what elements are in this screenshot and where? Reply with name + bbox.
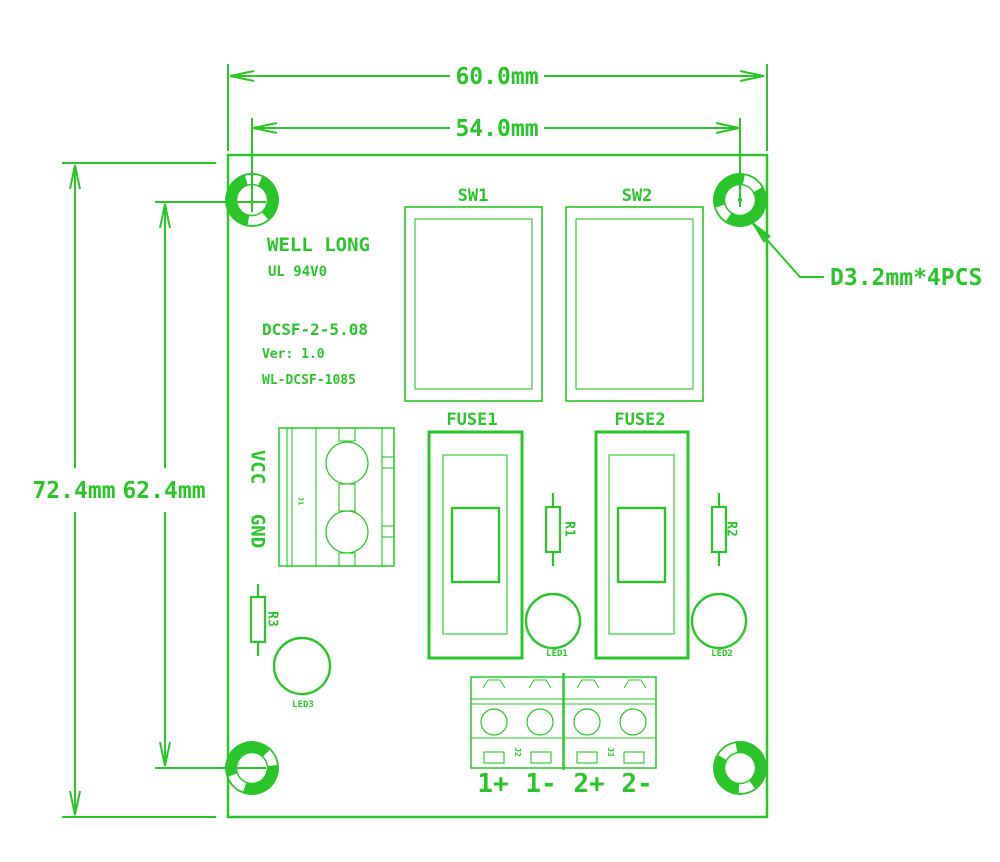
fuse1-body: [452, 508, 499, 582]
sw2-label: SW2: [622, 186, 653, 206]
r1-body: [546, 507, 560, 552]
hole-center-mark: [738, 198, 742, 202]
brand-label: WELL LONG: [267, 234, 370, 256]
j1-slot-middle: [339, 484, 355, 511]
output-terminal-blocks: J2 J3: [471, 673, 656, 770]
led-led3: LED3: [274, 638, 330, 710]
pin-slot-2n: [624, 752, 644, 763]
r3-label: R3: [265, 611, 280, 627]
j3-label: J3: [606, 747, 615, 757]
sw1-inner-outline: [415, 219, 532, 389]
terminal-1-neg-label: 1-: [525, 769, 556, 799]
led1-label: LED1: [546, 649, 568, 659]
pin-slot-2p: [577, 752, 597, 763]
resistor-r3: R3: [251, 584, 280, 656]
pcb-dimension-drawing: 60.0mm 54.0mm 72.4mm 62.4mm D3.2mm*4PCS: [0, 0, 1000, 862]
dimension-hole-span-height: 62.4mm: [122, 202, 266, 768]
j1-clamp-bottom: [382, 526, 394, 537]
j2-label: J2: [513, 747, 522, 757]
gnd-label: GND: [247, 514, 269, 548]
j1-slot-bottom: [339, 553, 355, 566]
sw1-label: SW1: [458, 186, 489, 206]
j1-screw-bottom: [326, 511, 368, 553]
dimension-label: 54.0mm: [455, 116, 538, 142]
switch-sw1: SW1: [405, 186, 542, 401]
terminal-2-neg-label: 2-: [621, 769, 652, 799]
mounting-hole-bottom-right: [710, 738, 770, 798]
j1-label: J1: [297, 497, 305, 505]
dimension-label: 60.0mm: [455, 64, 538, 90]
terminal-1-pos-label: 1+: [477, 769, 508, 799]
fuse-fuse2: FUSE2: [596, 410, 688, 658]
j1-outline: [279, 428, 394, 566]
resistor-r1: R1: [546, 493, 577, 566]
drawing-canvas: 60.0mm 54.0mm 72.4mm 62.4mm D3.2mm*4PCS: [0, 0, 1000, 862]
input-terminal-j1: VCC GND J1: [247, 428, 395, 566]
hole-note-label: D3.2mm*4PCS: [830, 265, 982, 291]
terminal-2-pos-label: 2+: [573, 769, 604, 799]
flammability-label: UL 94V0: [268, 264, 327, 280]
r3-body: [251, 597, 265, 642]
dimension-label: 62.4mm: [122, 478, 205, 504]
j1-slot-top: [339, 428, 355, 441]
led2-label: LED2: [711, 649, 733, 659]
j1-clamp-top: [382, 457, 394, 468]
sw2-inner-outline: [576, 219, 693, 389]
part-number-label: WL-DCSF-1085: [262, 373, 356, 388]
switch-sw2: SW2: [566, 186, 703, 401]
dimension-label: 72.4mm: [32, 478, 115, 504]
screw-2p: [574, 709, 600, 735]
vcc-label: VCC: [247, 450, 269, 484]
led3-label: LED3: [292, 700, 314, 710]
fuse1-label: FUSE1: [446, 410, 497, 430]
hole-diameter-callout: D3.2mm*4PCS: [750, 220, 982, 291]
pin-slot-1p: [484, 752, 504, 763]
screw-2n: [620, 709, 646, 735]
j1-screw-top: [326, 442, 368, 484]
version-label: Ver: 1.0: [262, 347, 325, 362]
resistor-r2: R2: [712, 493, 739, 566]
screw-1p: [481, 709, 507, 735]
fuse-fuse1: FUSE1: [429, 410, 522, 658]
model-label: DCSF-2-5.08: [262, 320, 368, 339]
dimension-hole-span-width: 54.0mm: [252, 116, 740, 212]
r2-label: R2: [724, 521, 739, 537]
led-led2: LED2: [692, 594, 746, 659]
led1-body: [526, 594, 580, 648]
r1-label: R1: [562, 521, 577, 537]
screw-1n: [527, 709, 553, 735]
fuse2-label: FUSE2: [614, 410, 665, 430]
led3-body: [274, 638, 330, 694]
fuse2-body: [618, 508, 665, 582]
terminal-polarity-labels: 1+ 1- 2+ 2-: [477, 769, 652, 799]
sw2-outline: [566, 207, 703, 401]
pin-slot-1n: [531, 752, 551, 763]
silkscreen-text-block: WELL LONG UL 94V0 DCSF-2-5.08 Ver: 1.0 W…: [262, 234, 370, 388]
led2-body: [692, 594, 746, 648]
led-led1: LED1: [526, 594, 580, 659]
sw1-outline: [405, 207, 542, 401]
